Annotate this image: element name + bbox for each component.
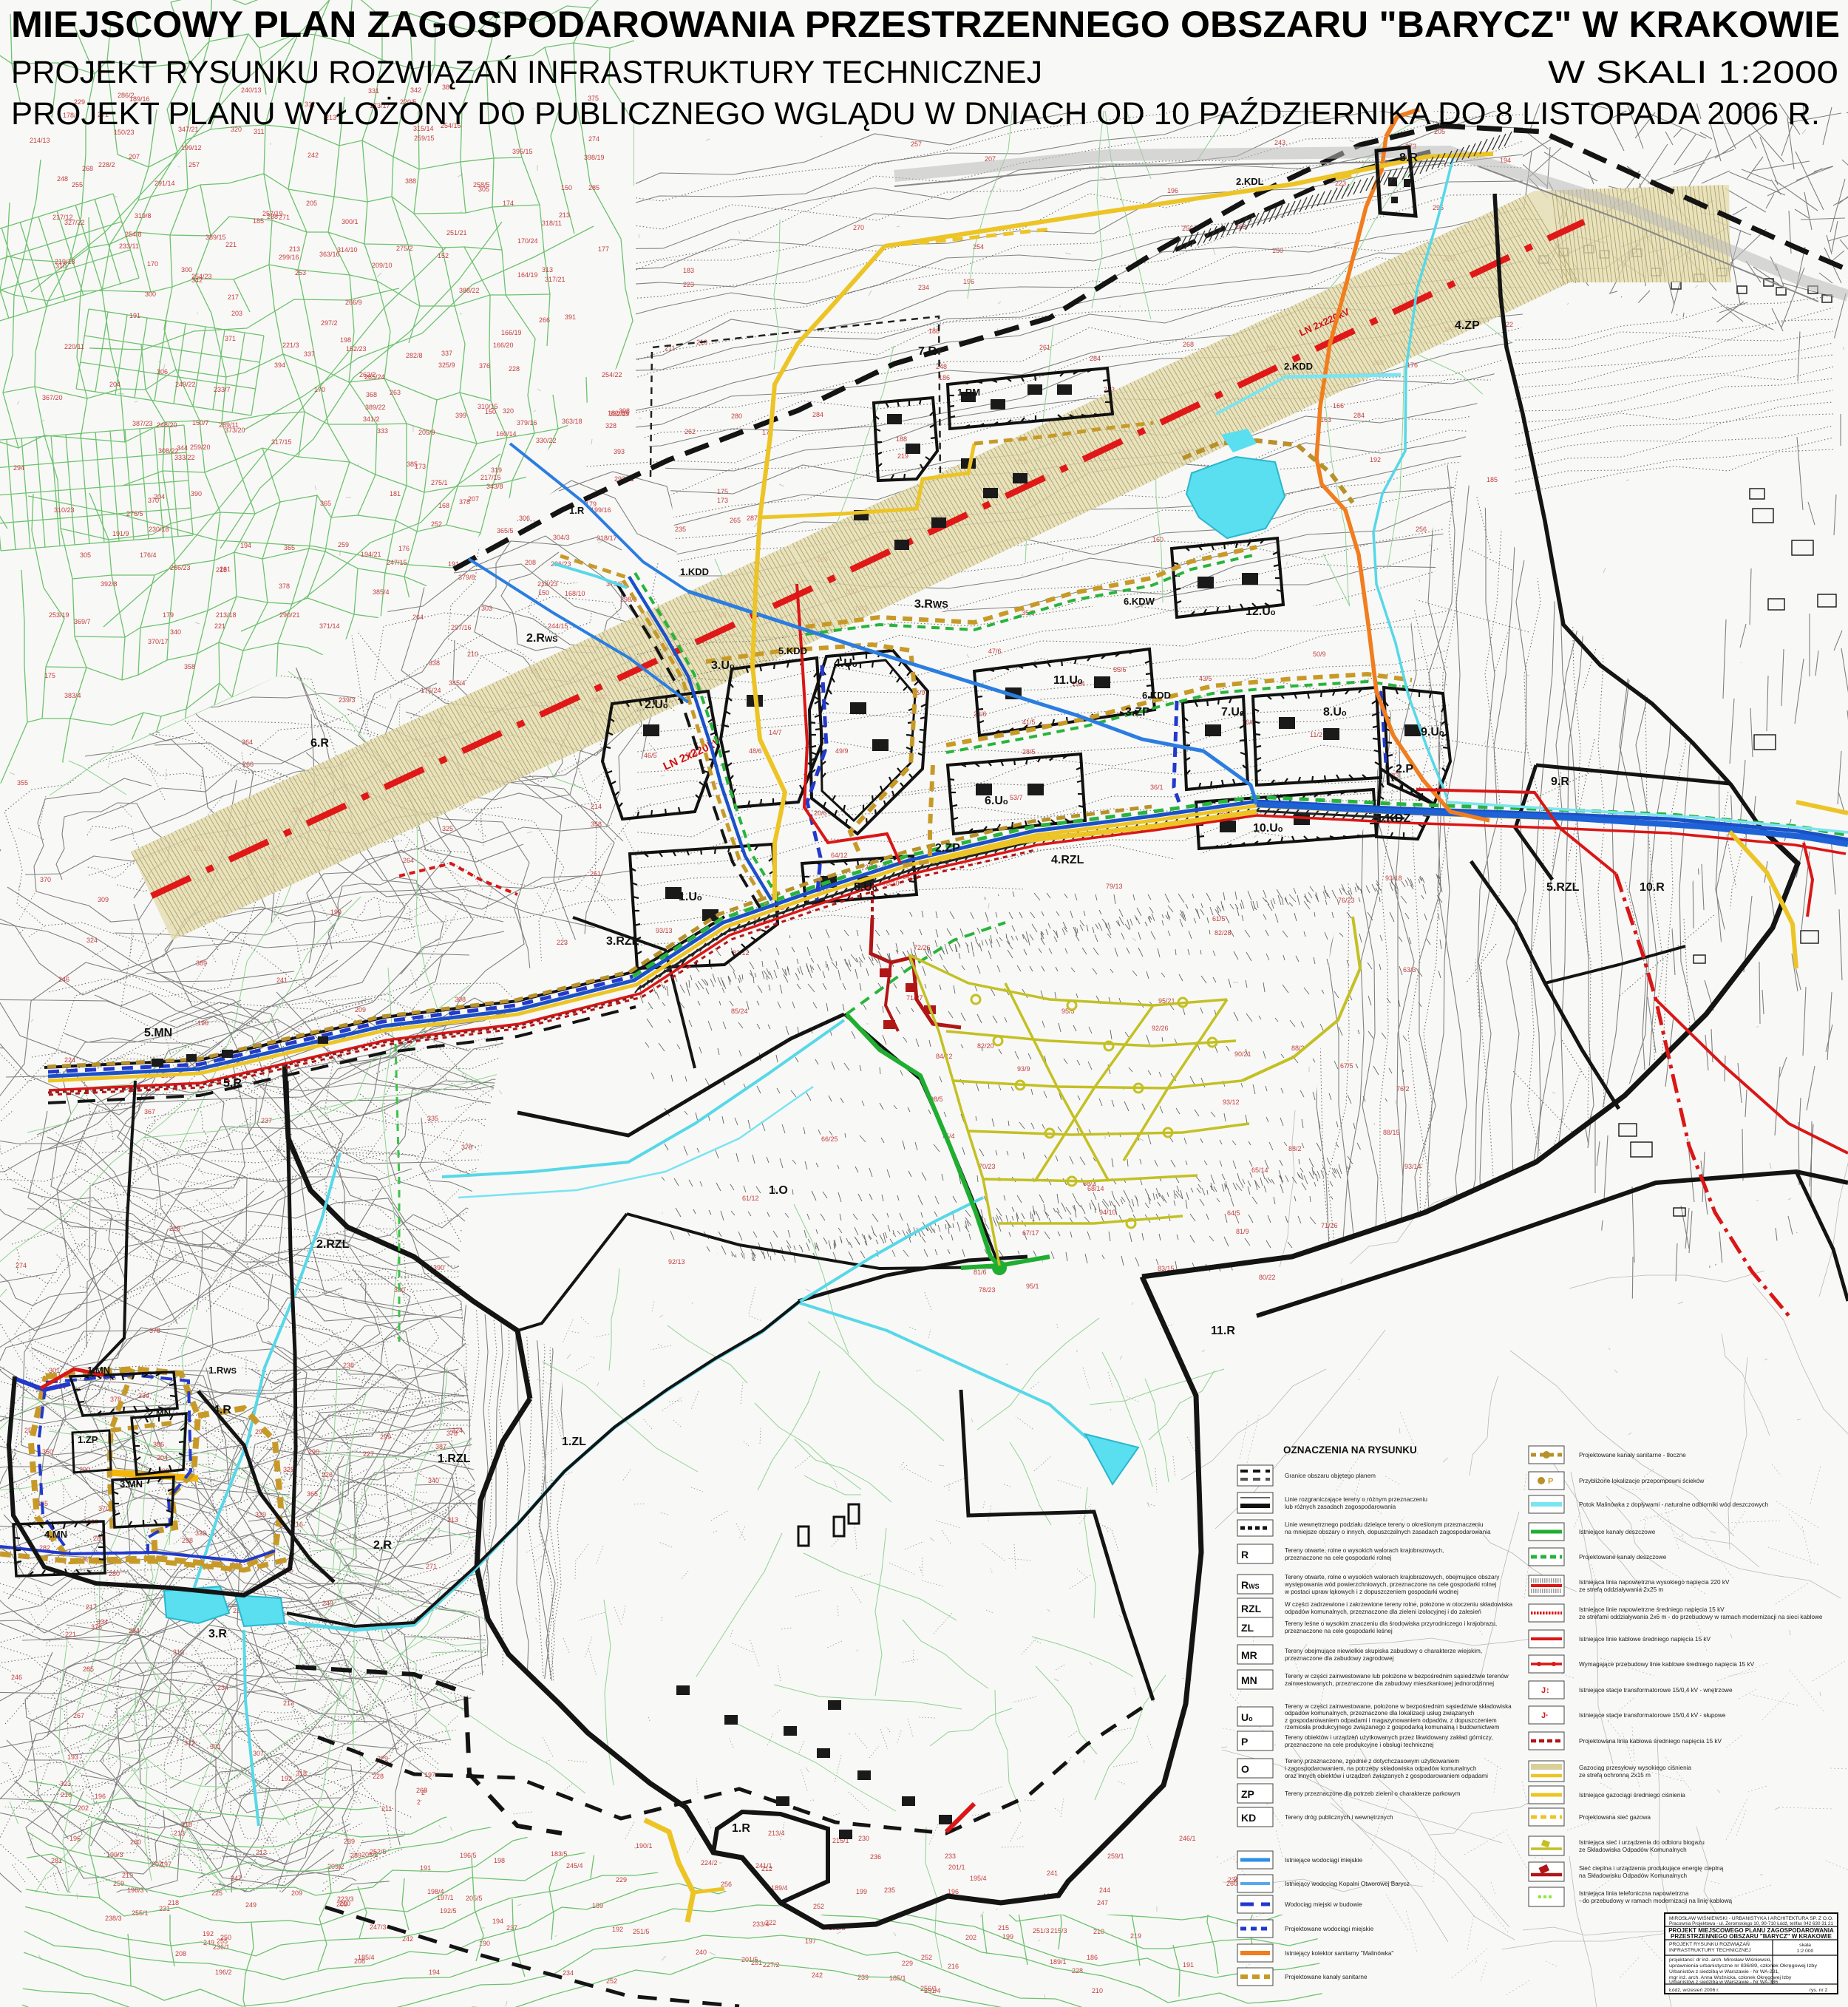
svg-text:Projektowane kanały sanitarne: Projektowane kanały sanitarne [1285, 1974, 1368, 1980]
svg-text:252: 252 [431, 520, 442, 528]
svg-text:325: 325 [442, 825, 453, 832]
svg-text:78/23: 78/23 [979, 1286, 996, 1294]
svg-text:219/18: 219/18 [55, 258, 75, 265]
svg-text:1.RM: 1.RM [957, 387, 980, 398]
svg-text:150: 150 [538, 589, 549, 597]
svg-text:177: 177 [598, 245, 609, 253]
svg-text:W części zadrzewione i zakrzew: W części zadrzewione i zakrzewione teren… [1285, 1601, 1513, 1608]
svg-text:na Składowisku Odpadów Komunal: na Składowisku Odpadów Komunalnych [1579, 1872, 1688, 1879]
svg-text:176/4: 176/4 [140, 551, 157, 559]
svg-text:160/14: 160/14 [496, 430, 517, 438]
svg-text:191: 191 [1183, 1961, 1194, 1969]
svg-text:213: 213 [174, 1830, 185, 1837]
svg-text:4.R: 4.R [213, 1404, 231, 1416]
svg-text:317/21: 317/21 [545, 276, 565, 283]
svg-text:208: 208 [525, 559, 536, 566]
svg-text:340: 340 [428, 1477, 439, 1484]
svg-text:307: 307 [253, 1750, 264, 1757]
svg-text:221: 221 [225, 241, 237, 248]
svg-text:49/9: 49/9 [835, 747, 849, 755]
svg-text:152: 152 [438, 252, 449, 259]
svg-text:ZP: ZP [1241, 1788, 1254, 1800]
svg-text:398/19: 398/19 [584, 154, 605, 161]
svg-text:Projektowane wodociągi miejski: Projektowane wodociągi miejskie [1285, 1926, 1374, 1932]
svg-text:249: 249 [245, 1901, 257, 1909]
svg-text:299: 299 [380, 1433, 391, 1441]
svg-text:3.MN: 3.MN [120, 1478, 143, 1490]
svg-text:251/3: 251/3 [1033, 1927, 1050, 1935]
svg-text:369/7: 369/7 [74, 618, 91, 625]
svg-text:190/1: 190/1 [636, 1842, 653, 1850]
svg-text:przeznaczone na cele gospodark: przeznaczone na cele gospodarki leśnej [1285, 1628, 1393, 1634]
svg-text:168/10: 168/10 [565, 590, 585, 597]
svg-text:Wodociąg miejski w budowie: Wodociąg miejski w budowie [1285, 1901, 1362, 1908]
svg-text:205/9: 205/9 [418, 429, 435, 436]
svg-text:228: 228 [373, 1773, 384, 1780]
svg-text:Istniejący wodociąg Kopalni Ot: Istniejący wodociąg Kopalni Otworowej Ba… [1285, 1881, 1410, 1887]
svg-text:192/5: 192/5 [440, 1907, 457, 1915]
svg-text:2.P: 2.P [1396, 763, 1413, 775]
svg-text:310/15: 310/15 [478, 403, 498, 410]
svg-text:284: 284 [129, 1627, 140, 1634]
svg-text:198: 198 [340, 336, 351, 344]
svg-text:343/8: 343/8 [486, 483, 503, 490]
svg-text:183: 183 [683, 267, 694, 274]
svg-text:213/18: 213/18 [216, 611, 237, 619]
svg-text:- do przebudowy w ramach moder: - do przebudowy w ramach modernizacji na… [1579, 1898, 1733, 1904]
svg-text:175: 175 [44, 672, 55, 679]
svg-text:196/2: 196/2 [215, 1969, 232, 1976]
svg-text:Linie wewnętrznego podziału dz: Linie wewnętrznego podziału dzielące ter… [1285, 1521, 1484, 1528]
svg-text:379/8: 379/8 [458, 574, 475, 581]
svg-text:297/2: 297/2 [321, 319, 338, 327]
svg-text:2.MN: 2.MN [148, 1407, 171, 1419]
svg-text:95/1: 95/1 [1026, 1283, 1039, 1290]
svg-text:383/4: 383/4 [64, 692, 81, 699]
svg-text:228: 228 [509, 365, 520, 373]
svg-text:209: 209 [355, 1006, 366, 1013]
svg-text:ze strefą ochronną 2x15 m: ze strefą ochronną 2x15 m [1579, 1772, 1651, 1779]
svg-text:przeznaczone dla zabudowy zagr: przeznaczone dla zabudowy zagrodowej [1285, 1655, 1394, 1662]
svg-text:257: 257 [188, 161, 200, 169]
svg-text:289/11: 289/11 [219, 421, 239, 429]
svg-text:166/20: 166/20 [493, 342, 514, 349]
svg-text:248/20: 248/20 [157, 421, 177, 429]
svg-text:390: 390 [191, 490, 202, 497]
svg-text:379/16: 379/16 [517, 419, 537, 427]
svg-text:199: 199 [856, 1888, 867, 1895]
svg-text:236: 236 [870, 1853, 881, 1861]
svg-text:251/5: 251/5 [633, 1928, 650, 1935]
svg-text:Istniejąca sieć i urządzenia d: Istniejąca sieć i urządzenia do odbioru … [1579, 1839, 1705, 1846]
svg-text:64/12: 64/12 [831, 852, 848, 859]
svg-text:341/2: 341/2 [363, 415, 380, 423]
svg-text:Tereny dróg publicznych i wewn: Tereny dróg publicznych i wewnętrznych [1285, 1814, 1393, 1821]
svg-text:350: 350 [42, 1448, 53, 1456]
svg-text:191/9: 191/9 [112, 530, 129, 537]
svg-text:285: 285 [588, 184, 599, 191]
svg-text:OZNACZENIA NA RYSUNKU: OZNACZENIA NA RYSUNKU [1283, 1444, 1417, 1456]
svg-text:306: 306 [157, 368, 168, 376]
svg-text:370/17: 370/17 [148, 638, 169, 645]
svg-text:224: 224 [64, 1056, 75, 1064]
svg-text:93/13: 93/13 [656, 927, 673, 934]
svg-text:242: 242 [308, 152, 319, 159]
svg-text:386: 386 [153, 1441, 164, 1448]
svg-text:PROJEKT PLANU WYŁOŻONY DO PUBL: PROJEKT PLANU WYŁOŻONY DO PUBLICZNEGO WG… [11, 96, 1820, 132]
svg-text:2.RZL: 2.RZL [316, 1238, 350, 1251]
svg-text:289: 289 [350, 1852, 361, 1859]
svg-text:55/6: 55/6 [1113, 666, 1127, 673]
svg-text:z gospodarowaniem odpadami i m: z gospodarowaniem odpadami i magazynowan… [1285, 1717, 1497, 1724]
svg-text:263: 263 [390, 389, 401, 396]
svg-text:224/2: 224/2 [701, 1859, 718, 1867]
svg-text:82/28: 82/28 [1215, 929, 1232, 937]
svg-text:291/14: 291/14 [154, 180, 175, 187]
svg-text:94/10: 94/10 [1099, 1209, 1116, 1216]
svg-text:93/9: 93/9 [1017, 1065, 1030, 1073]
svg-text:364: 364 [242, 738, 253, 746]
svg-text:1.R: 1.R [732, 1822, 750, 1835]
svg-text:170: 170 [314, 386, 325, 393]
svg-text:1.RWS: 1.RWS [208, 1365, 237, 1376]
svg-text:247/3: 247/3 [370, 1923, 387, 1931]
svg-text:6.KDW: 6.KDW [1124, 596, 1155, 607]
svg-text:W SKALI 1:2000: W SKALI 1:2000 [1548, 55, 1838, 90]
svg-text:65/14: 65/14 [1251, 1166, 1268, 1174]
svg-text:244: 244 [1099, 1887, 1110, 1894]
svg-text:234: 234 [217, 1684, 228, 1691]
svg-text:254/22: 254/22 [602, 371, 622, 378]
svg-text:79/13: 79/13 [1106, 883, 1123, 890]
svg-text:199/12: 199/12 [181, 144, 202, 152]
svg-text:ze strefami oddziaływania 2x6: ze strefami oddziaływania 2x6 m - do prz… [1579, 1614, 1823, 1620]
svg-text:294: 294 [13, 464, 24, 472]
svg-text:202: 202 [965, 1934, 976, 1941]
svg-text:85/24: 85/24 [731, 1008, 748, 1015]
svg-text:41/5: 41/5 [1022, 719, 1036, 726]
svg-text:246: 246 [11, 1674, 22, 1681]
svg-text:233: 233 [945, 1853, 956, 1860]
svg-text:241/1: 241/1 [755, 1862, 772, 1870]
svg-text:300: 300 [181, 266, 192, 274]
svg-text:240: 240 [696, 1949, 707, 1956]
svg-text:215/3: 215/3 [1050, 1927, 1067, 1935]
svg-text:PRZESTRZENNEGO OBSZARU "BARYCZ: PRZESTRZENNEGO OBSZARU "BARYCZ" W KRAKOW… [1671, 1933, 1832, 1940]
svg-text:14/7: 14/7 [769, 729, 782, 736]
svg-text:4.RZL: 4.RZL [1051, 854, 1084, 866]
svg-text:226: 226 [322, 1471, 333, 1478]
svg-text:53/7: 53/7 [1010, 794, 1023, 801]
svg-text:275/1: 275/1 [431, 479, 448, 486]
svg-text:218: 218 [216, 566, 227, 574]
svg-text:80/22: 80/22 [1259, 1274, 1276, 1281]
svg-text:28/5: 28/5 [1022, 748, 1036, 755]
svg-text:233/4: 233/4 [753, 1921, 770, 1928]
svg-text:189/1: 189/1 [1050, 1958, 1067, 1966]
svg-text:11/2: 11/2 [1310, 731, 1322, 738]
svg-text:168: 168 [438, 502, 449, 509]
svg-text:152/23: 152/23 [346, 345, 367, 353]
svg-text:PROJEKT RYSUNKU ROZWIĄZAŃ INFR: PROJEKT RYSUNKU ROZWIĄZAŃ INFRASTRUKTURY… [11, 55, 1042, 90]
svg-text:244/15: 244/15 [548, 622, 568, 630]
svg-text:odpadów komunalnych, przeznacz: odpadów komunalnych, przeznaczone dla lo… [1285, 1710, 1475, 1716]
svg-text:265: 265 [730, 517, 741, 524]
svg-text:358: 358 [184, 663, 195, 670]
svg-text:208: 208 [354, 1957, 365, 1965]
svg-text:256: 256 [1416, 526, 1427, 533]
svg-text:Istniejące wodociągi miejskie: Istniejące wodociągi miejskie [1285, 1857, 1363, 1864]
svg-text:Projektowana linia kablowa śre: Projektowana linia kablowa średniego nap… [1579, 1738, 1722, 1745]
svg-text:257/19: 257/19 [262, 210, 283, 217]
svg-text:P: P [1241, 1736, 1248, 1748]
svg-text:266/23: 266/23 [170, 564, 191, 571]
svg-text:rzemiosła produkcyjnego związa: rzemiosła produkcyjnego związanego z gos… [1285, 1724, 1500, 1731]
svg-text:358: 358 [591, 821, 602, 828]
svg-text:Linie rozgraniczające tereny o: Linie rozgraniczające tereny o różnym pr… [1285, 1496, 1427, 1503]
svg-text:233/7: 233/7 [214, 386, 231, 393]
svg-text:213: 213 [559, 211, 570, 219]
svg-text:207: 207 [129, 153, 140, 160]
svg-text:204: 204 [109, 381, 120, 388]
svg-text:253/19: 253/19 [49, 611, 69, 619]
svg-text:207: 207 [468, 495, 479, 503]
svg-text:Sieć cieplna i urządzenia prod: Sieć cieplna i urządzenia produkujące en… [1579, 1865, 1724, 1872]
svg-text:319: 319 [491, 466, 502, 474]
svg-text:Tereny przeznaczone dla potrze: Tereny przeznaczone dla potrzeb zieleni … [1285, 1790, 1461, 1797]
svg-text:387/23: 387/23 [132, 420, 153, 427]
svg-text:392/8: 392/8 [101, 580, 118, 588]
svg-text:występowania wód powierzchniow: występowania wód powierzchniowych, przez… [1284, 1581, 1496, 1588]
svg-text:ze Składowiska Odpadów Komunal: ze Składowiska Odpadów Komunalnych [1579, 1847, 1687, 1853]
svg-text:266: 266 [242, 761, 254, 768]
svg-text:Istniejąca linia napowietrzna: Istniejąca linia napowietrzna wysokiego … [1579, 1579, 1730, 1586]
svg-text:MR: MR [1241, 1649, 1257, 1661]
svg-text:275/2: 275/2 [396, 245, 413, 252]
svg-text:318/17: 318/17 [597, 534, 617, 542]
svg-text:przeznaczone na cele produkcyj: przeznaczone na cele produkcyjne i obsłu… [1285, 1742, 1434, 1748]
svg-text:61/12: 61/12 [742, 1195, 759, 1202]
svg-text:oraz innych obiektów i urządze: oraz innych obiektów i urządzeń związany… [1285, 1773, 1488, 1779]
svg-text:Łódź, wrzesień 2006 r.: Łódź, wrzesień 2006 r. [1669, 1988, 1719, 1993]
svg-text:325: 325 [283, 1466, 294, 1473]
svg-text:290/21: 290/21 [279, 611, 300, 619]
svg-text:254/8: 254/8 [125, 231, 142, 238]
svg-text:238/3: 238/3 [105, 1915, 122, 1922]
svg-text:370: 370 [40, 876, 51, 883]
svg-text:376: 376 [479, 362, 490, 370]
svg-text:Tereny w części zainwestowane: Tereny w części zainwestowane lub położo… [1285, 1673, 1509, 1680]
svg-text:368: 368 [366, 391, 377, 398]
svg-text:329: 329 [255, 1511, 266, 1518]
svg-text:239: 239 [344, 1838, 355, 1845]
svg-text:185: 185 [253, 217, 264, 225]
svg-text:Projektowana sieć gazowa: Projektowana sieć gazowa [1579, 1814, 1651, 1821]
svg-text:280: 280 [731, 412, 742, 420]
svg-text:150/7: 150/7 [192, 419, 209, 427]
svg-text:J↕: J↕ [1541, 1686, 1550, 1695]
svg-text:328: 328 [605, 422, 616, 429]
svg-text:274: 274 [16, 1262, 27, 1269]
svg-text:227: 227 [363, 1450, 374, 1458]
svg-text:64/5: 64/5 [1227, 1209, 1240, 1217]
svg-text:92/26: 92/26 [1152, 1025, 1169, 1032]
svg-text:194/21: 194/21 [361, 551, 381, 558]
svg-text:253: 253 [295, 269, 306, 276]
svg-text:P: P [1548, 1477, 1553, 1486]
svg-text:192: 192 [1370, 456, 1381, 463]
svg-text:242: 242 [812, 1972, 823, 1979]
svg-text:4.MN: 4.MN [44, 1529, 67, 1540]
svg-text:216: 216 [61, 1791, 72, 1799]
svg-text:318/11: 318/11 [542, 220, 562, 227]
svg-text:179: 179 [163, 611, 174, 619]
svg-text:262: 262 [684, 428, 696, 435]
svg-text:2.KDD: 2.KDD [1284, 361, 1313, 372]
svg-text:na mniejsze obszary o innych,: na mniejsze obszary o innych, dopuszczal… [1285, 1529, 1491, 1535]
svg-text:23/6: 23/6 [974, 710, 987, 718]
svg-text:186: 186 [939, 374, 950, 381]
svg-text:378: 378 [446, 1430, 458, 1437]
svg-text:218/23: 218/23 [537, 580, 558, 588]
svg-text:71/26: 71/26 [1321, 1222, 1338, 1229]
svg-text:217/15: 217/15 [480, 474, 501, 481]
svg-text:389/22: 389/22 [365, 404, 386, 411]
svg-text:PROJEKT RYSUNKU ROZWIĄZAŃ: PROJEKT RYSUNKU ROZWIĄZAŃ [1669, 1940, 1750, 1947]
svg-text:399: 399 [455, 412, 466, 419]
svg-text:198: 198 [494, 1857, 505, 1864]
svg-text:211: 211 [381, 1805, 392, 1813]
svg-text:344: 344 [177, 444, 188, 452]
svg-text:3.R: 3.R [208, 1628, 227, 1640]
svg-text:312: 312 [184, 1739, 195, 1747]
svg-text:300/1: 300/1 [342, 218, 359, 225]
svg-text:268: 268 [82, 165, 93, 172]
svg-text:192: 192 [203, 1930, 214, 1938]
svg-text:uprawnienia urbanistyczne nr 8: uprawnienia urbanistyczne nr 836/89, czł… [1669, 1963, 1818, 1969]
svg-text:221/3: 221/3 [282, 342, 299, 349]
svg-text:367/20: 367/20 [42, 394, 63, 401]
svg-text:46/5: 46/5 [644, 752, 657, 759]
svg-text:170/24: 170/24 [517, 237, 538, 245]
svg-text:285: 285 [83, 1665, 94, 1673]
svg-text:6.KDD: 6.KDD [1142, 690, 1171, 701]
svg-text:281: 281 [51, 1857, 62, 1864]
svg-text:252: 252 [921, 1954, 932, 1961]
svg-text:rys. nr 2: rys. nr 2 [1810, 1988, 1828, 1993]
svg-text:196: 196 [963, 278, 974, 285]
svg-text:166/19: 166/19 [501, 329, 522, 336]
svg-text:6.R: 6.R [310, 737, 329, 750]
svg-text:RZL: RZL [1241, 1603, 1262, 1614]
svg-text:220/11: 220/11 [64, 343, 84, 350]
svg-text:1:2 000: 1:2 000 [1797, 1949, 1814, 1954]
svg-text:Tereny w części zainwestowane,: Tereny w części zainwestowane, położone … [1285, 1703, 1512, 1710]
svg-text:233/11: 233/11 [119, 242, 139, 250]
svg-text:241: 241 [1047, 1870, 1058, 1877]
svg-text:284: 284 [812, 411, 823, 418]
svg-text:Istniejąca linia telefoniczna: Istniejąca linia telefoniczna napowietrz… [1579, 1890, 1689, 1897]
svg-text:237: 237 [261, 1117, 272, 1124]
svg-text:Istniejące stacje transformato: Istniejące stacje transformatorowe 15/0,… [1579, 1712, 1726, 1719]
svg-text:262/2: 262/2 [359, 371, 376, 378]
svg-text:w postaci upraw łąkowych i z d: w postaci upraw łąkowych i z dopuszczeni… [1284, 1589, 1458, 1595]
svg-text:Gazociąg przesyłowy wysokiego: Gazociąg przesyłowy wysokiego ciśnienia [1579, 1765, 1691, 1771]
svg-text:47/6: 47/6 [988, 648, 1002, 655]
svg-text:229: 229 [902, 1960, 913, 1967]
svg-text:9.R: 9.R [1551, 775, 1569, 788]
svg-text:175/24: 175/24 [421, 687, 441, 694]
svg-text:385/4: 385/4 [373, 588, 390, 596]
svg-text:3.RZL: 3.RZL [606, 935, 639, 948]
svg-text:370: 370 [148, 497, 159, 504]
svg-text:280: 280 [109, 1570, 120, 1578]
svg-text:228/2: 228/2 [98, 161, 115, 169]
svg-text:394: 394 [274, 361, 285, 369]
svg-text:196: 196 [1167, 187, 1178, 194]
svg-text:218: 218 [168, 1899, 179, 1906]
svg-text:76/2: 76/2 [1396, 1085, 1410, 1093]
svg-text:61/5: 61/5 [1212, 915, 1226, 923]
svg-text:projektanci: dr inż. arch. Mir: projektanci: dr inż. arch. Mirosław Wiśn… [1669, 1957, 1771, 1963]
svg-text:378: 378 [279, 583, 290, 590]
svg-text:170: 170 [147, 260, 158, 268]
svg-text:5.MN: 5.MN [144, 1027, 172, 1039]
svg-text:188: 188 [928, 327, 940, 335]
svg-text:5.RZL: 5.RZL [1546, 881, 1580, 894]
svg-text:337: 337 [304, 350, 315, 358]
svg-text:Urbanistów z siedzibą w Warsza: Urbanistów z siedzibą w Warszawie - Nr W… [1669, 1969, 1779, 1974]
svg-text:164/19: 164/19 [517, 271, 538, 279]
svg-text:81/9: 81/9 [1236, 1228, 1249, 1235]
svg-text:245/4: 245/4 [566, 1862, 583, 1870]
svg-text:4.ZP: 4.ZP [1455, 319, 1480, 332]
svg-text:229: 229 [616, 1876, 627, 1884]
svg-text:5.R: 5.R [223, 1077, 242, 1090]
svg-text:7.R: 7.R [918, 345, 937, 358]
svg-text:299/16: 299/16 [279, 254, 299, 261]
svg-text:213: 213 [283, 1699, 294, 1707]
svg-text:90/21: 90/21 [1234, 1050, 1251, 1058]
svg-text:391: 391 [565, 313, 576, 321]
svg-text:ze strefą oddziaływania 2x25 m: ze strefą oddziaływania 2x25 m [1579, 1586, 1663, 1593]
svg-text:181: 181 [390, 490, 401, 497]
svg-text:202: 202 [78, 1804, 89, 1812]
svg-text:3.RWS: 3.RWS [914, 598, 948, 611]
svg-text:218: 218 [181, 1821, 192, 1828]
svg-text:367: 367 [144, 1108, 155, 1115]
svg-text:337: 337 [441, 350, 452, 357]
svg-text:247: 247 [231, 1875, 242, 1882]
svg-text:388: 388 [405, 177, 416, 185]
svg-text:370: 370 [98, 1505, 109, 1512]
svg-text:325/9: 325/9 [438, 361, 455, 369]
svg-text:185: 185 [1487, 476, 1498, 483]
svg-text:2.R: 2.R [373, 1539, 392, 1552]
svg-text:385: 385 [407, 461, 418, 468]
svg-text:194: 194 [429, 1969, 440, 1976]
svg-text:175: 175 [717, 488, 728, 495]
svg-text:209: 209 [291, 1889, 302, 1897]
svg-text:66/25: 66/25 [821, 1135, 838, 1143]
svg-text:196: 196 [197, 1019, 208, 1027]
svg-text:196/5: 196/5 [460, 1852, 477, 1859]
svg-text:Istniejące stacje transformato: Istniejące stacje transformatorowe 15/0,… [1579, 1687, 1733, 1694]
svg-text:365: 365 [307, 1490, 318, 1498]
svg-text:88/15: 88/15 [1383, 1129, 1400, 1136]
svg-text:235: 235 [675, 526, 686, 533]
svg-text:196: 196 [95, 1793, 106, 1800]
